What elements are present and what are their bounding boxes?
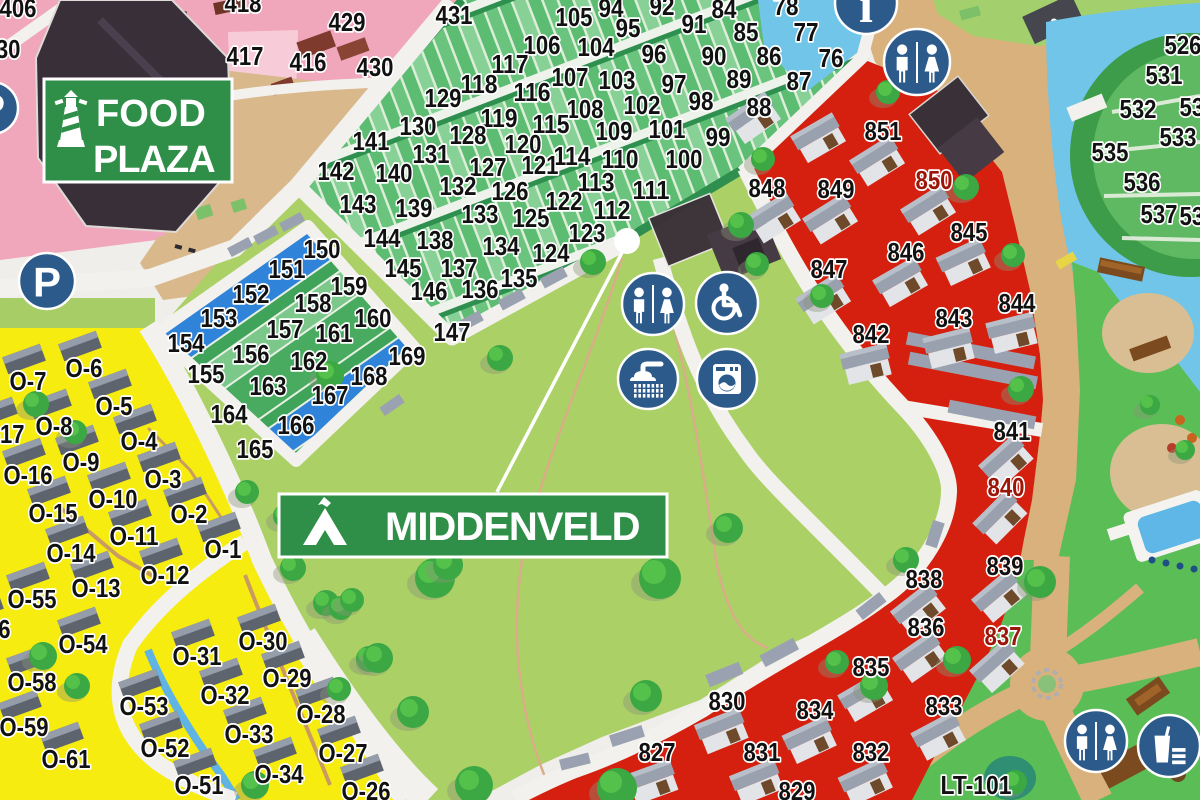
- svg-text:O-58: O-58: [8, 667, 57, 697]
- svg-text:842: 842: [853, 319, 890, 349]
- svg-text:851: 851: [865, 116, 902, 146]
- svg-text:99: 99: [706, 122, 731, 152]
- svg-text:843: 843: [936, 303, 973, 333]
- svg-text:O-16: O-16: [4, 460, 53, 490]
- svg-text:87: 87: [787, 66, 812, 96]
- svg-text:827: 827: [639, 737, 676, 767]
- svg-text:91: 91: [682, 9, 707, 39]
- svg-text:536: 536: [1124, 167, 1161, 197]
- svg-text:531: 531: [1146, 60, 1183, 90]
- svg-text:406: 406: [0, 0, 37, 23]
- svg-text:124: 124: [533, 238, 570, 268]
- svg-text:168: 168: [351, 361, 388, 391]
- svg-text:O-32: O-32: [201, 680, 250, 710]
- svg-text:156: 156: [233, 339, 270, 369]
- svg-text:97: 97: [662, 69, 687, 99]
- svg-text:O-14: O-14: [47, 538, 96, 568]
- svg-text:831: 831: [744, 737, 781, 767]
- svg-text:86: 86: [757, 41, 782, 71]
- svg-text:144: 144: [364, 223, 401, 253]
- svg-text:416: 416: [290, 47, 327, 77]
- svg-text:135: 135: [501, 263, 538, 293]
- svg-text:FOOD: FOOD: [96, 93, 206, 135]
- svg-text:532: 532: [1120, 94, 1157, 124]
- svg-text:160: 160: [355, 303, 392, 333]
- svg-text:113: 113: [578, 167, 615, 197]
- svg-text:106: 106: [524, 30, 561, 60]
- svg-text:142: 142: [318, 156, 355, 186]
- svg-text:152: 152: [233, 279, 270, 309]
- svg-text:133: 133: [462, 199, 499, 229]
- svg-text:PLAZA: PLAZA: [93, 139, 215, 181]
- svg-text:162: 162: [291, 346, 328, 376]
- svg-text:105: 105: [556, 2, 593, 32]
- svg-text:MIDDENVELD: MIDDENVELD: [385, 505, 640, 549]
- svg-text:845: 845: [951, 217, 988, 247]
- svg-text:829: 829: [779, 776, 816, 800]
- svg-text:O-11: O-11: [110, 521, 159, 551]
- svg-text:159: 159: [331, 271, 368, 301]
- svg-text:92: 92: [650, 0, 675, 21]
- svg-text:132: 132: [440, 171, 477, 201]
- svg-text:417: 417: [227, 41, 264, 71]
- svg-text:154: 154: [168, 328, 205, 358]
- svg-text:O-30: O-30: [239, 626, 288, 656]
- svg-text:538: 538: [1180, 201, 1200, 231]
- svg-text:833: 833: [926, 691, 963, 721]
- svg-text:O-2: O-2: [171, 499, 208, 529]
- svg-text:O-27: O-27: [319, 738, 368, 768]
- svg-text:O-15: O-15: [29, 498, 78, 528]
- svg-text:O-12: O-12: [141, 560, 190, 590]
- svg-text:847: 847: [811, 254, 848, 284]
- svg-text:533: 533: [1160, 122, 1197, 152]
- svg-text:163: 163: [250, 371, 287, 401]
- svg-text:O-53: O-53: [120, 691, 169, 721]
- svg-text:123: 123: [569, 218, 606, 248]
- svg-text:90: 90: [702, 41, 727, 71]
- svg-text:O-29: O-29: [263, 663, 312, 693]
- svg-text:161: 161: [316, 318, 353, 348]
- svg-text:85: 85: [734, 17, 759, 47]
- svg-text:P: P: [33, 259, 61, 306]
- svg-text:O-6: O-6: [66, 353, 103, 383]
- svg-text:848: 848: [749, 173, 786, 203]
- svg-text:O-8: O-8: [36, 411, 73, 441]
- svg-text:O-5: O-5: [96, 391, 133, 421]
- svg-text:96: 96: [642, 39, 667, 69]
- svg-text:535: 535: [1092, 137, 1129, 167]
- svg-text:165: 165: [237, 434, 274, 464]
- svg-text:430: 430: [357, 52, 394, 82]
- svg-text:100: 100: [666, 144, 703, 174]
- svg-text:837: 837: [985, 621, 1022, 651]
- svg-text:i: i: [859, 0, 873, 33]
- svg-text:O-13: O-13: [72, 573, 121, 603]
- svg-text:76: 76: [819, 43, 844, 73]
- svg-text:O-61: O-61: [42, 744, 91, 774]
- svg-text:O-56: O-56: [0, 614, 11, 644]
- svg-text:151: 151: [269, 254, 306, 284]
- svg-text:O-34: O-34: [255, 759, 304, 789]
- svg-text:418: 418: [225, 0, 262, 18]
- svg-text:77: 77: [794, 17, 819, 47]
- svg-text:429: 429: [329, 7, 366, 37]
- svg-text:153: 153: [201, 303, 238, 333]
- svg-text:98: 98: [689, 86, 714, 116]
- svg-text:167: 167: [312, 380, 349, 410]
- svg-text:111: 111: [633, 175, 670, 205]
- svg-text:530: 530: [1180, 92, 1200, 122]
- svg-text:O-9: O-9: [63, 447, 100, 477]
- svg-text:836: 836: [908, 612, 945, 642]
- svg-text:116: 116: [514, 77, 551, 107]
- svg-text:143: 143: [340, 189, 377, 219]
- svg-text:164: 164: [211, 399, 248, 429]
- svg-text:136: 136: [462, 274, 499, 304]
- svg-text:155: 155: [188, 359, 225, 389]
- svg-text:125: 125: [513, 203, 550, 233]
- svg-text:139: 139: [396, 193, 433, 223]
- svg-text:LT-101: LT-101: [941, 770, 1012, 800]
- svg-text:838: 838: [906, 564, 943, 594]
- svg-text:O-26: O-26: [342, 776, 391, 800]
- svg-text:166: 166: [278, 410, 315, 440]
- svg-text:140: 140: [376, 158, 413, 188]
- svg-text:147: 147: [434, 317, 471, 347]
- svg-text:O-52: O-52: [141, 733, 190, 763]
- svg-text:846: 846: [888, 237, 925, 267]
- svg-text:850: 850: [916, 165, 953, 195]
- svg-text:839: 839: [987, 551, 1024, 581]
- svg-text:832: 832: [853, 737, 890, 767]
- svg-text:835: 835: [853, 652, 890, 682]
- svg-text:131: 131: [413, 139, 450, 169]
- svg-text:101: 101: [649, 114, 686, 144]
- svg-text:849: 849: [818, 174, 855, 204]
- svg-text:157: 157: [267, 314, 304, 344]
- svg-text:526: 526: [1165, 30, 1200, 60]
- svg-text:134: 134: [483, 231, 520, 261]
- svg-text:169: 169: [389, 341, 426, 371]
- svg-text:129: 129: [425, 83, 462, 113]
- svg-text:95: 95: [616, 13, 641, 43]
- svg-text:O-3: O-3: [145, 464, 182, 494]
- svg-text:840: 840: [988, 472, 1025, 502]
- svg-text:108: 108: [567, 94, 604, 124]
- svg-text:130: 130: [400, 111, 437, 141]
- svg-text:P: P: [0, 88, 5, 131]
- svg-text:O-28: O-28: [297, 699, 346, 729]
- svg-text:128: 128: [450, 120, 487, 150]
- svg-text:830: 830: [709, 686, 746, 716]
- svg-text:O-4: O-4: [121, 426, 158, 456]
- svg-text:O-51: O-51: [175, 770, 224, 800]
- svg-text:O-54: O-54: [59, 629, 108, 659]
- svg-text:O-55: O-55: [8, 584, 57, 614]
- svg-text:118: 118: [461, 69, 498, 99]
- svg-text:146: 146: [411, 276, 448, 306]
- svg-text:122: 122: [546, 186, 583, 216]
- svg-text:834: 834: [797, 695, 834, 725]
- svg-text:107: 107: [552, 62, 589, 92]
- svg-text:141: 141: [353, 126, 390, 156]
- svg-text:O-33: O-33: [225, 719, 274, 749]
- svg-text:138: 138: [417, 225, 454, 255]
- svg-text:O-1: O-1: [205, 534, 242, 564]
- svg-text:844: 844: [999, 288, 1036, 318]
- svg-text:O-10: O-10: [89, 484, 138, 514]
- svg-text:841: 841: [994, 416, 1031, 446]
- svg-text:89: 89: [727, 64, 752, 94]
- svg-text:O-59: O-59: [0, 712, 49, 742]
- svg-text:O-7: O-7: [10, 366, 47, 396]
- svg-text:158: 158: [295, 288, 332, 318]
- svg-text:104: 104: [578, 32, 615, 62]
- svg-text:430: 430: [0, 34, 21, 64]
- svg-text:88: 88: [747, 92, 772, 122]
- svg-text:O-31: O-31: [173, 641, 222, 671]
- svg-text:O-17: O-17: [0, 419, 25, 449]
- svg-text:431: 431: [436, 0, 473, 30]
- svg-text:537: 537: [1141, 199, 1178, 229]
- svg-text:150: 150: [304, 234, 341, 264]
